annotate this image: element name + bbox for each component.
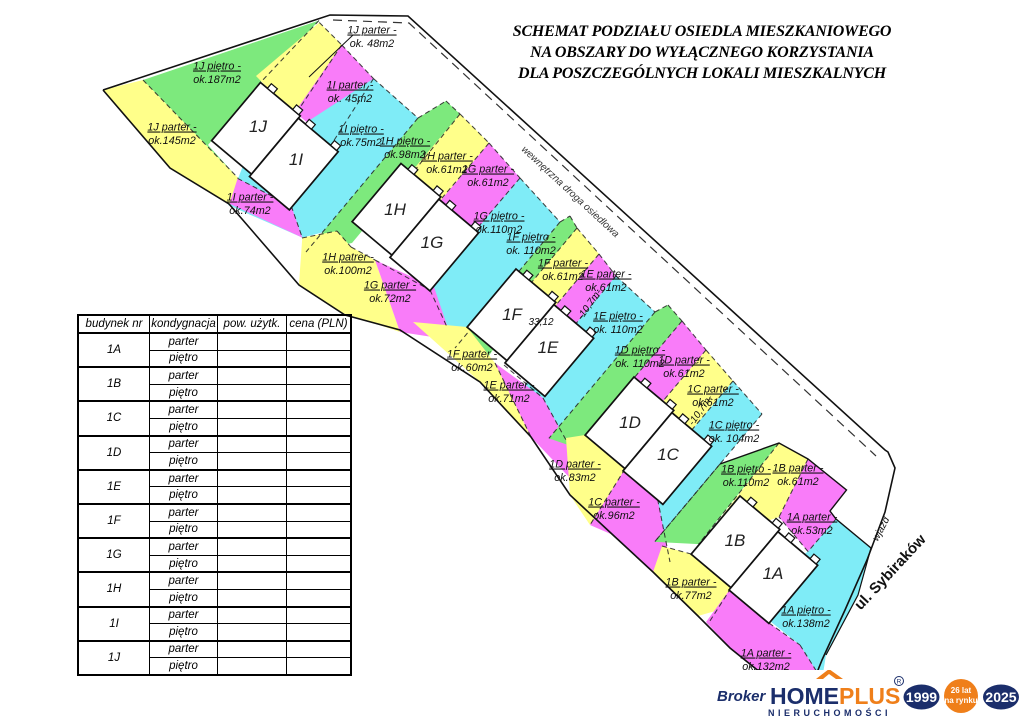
svg-text:1E: 1E: [538, 338, 559, 357]
svg-text:1C parter -: 1C parter -: [687, 384, 739, 396]
svg-text:1G parter -: 1G parter -: [462, 164, 515, 176]
svg-text:PLUS: PLUS: [839, 683, 900, 709]
svg-text:ok.61m2: ok.61m2: [542, 271, 583, 283]
svg-text:1D parter -: 1D parter -: [549, 459, 601, 471]
svg-text:1I parter -: 1I parter -: [227, 192, 274, 204]
svg-text:1I parter -: 1I parter -: [327, 80, 374, 92]
svg-text:R: R: [897, 679, 902, 686]
svg-text:1B parter -: 1B parter -: [772, 463, 823, 475]
svg-text:33,12: 33,12: [528, 317, 553, 328]
svg-text:ok.72m2: ok.72m2: [369, 293, 410, 305]
svg-text:ok.60m2: ok.60m2: [451, 362, 492, 374]
svg-text:1H piętro -: 1H piętro -: [380, 136, 431, 148]
svg-text:ok.77m2: ok.77m2: [670, 590, 711, 602]
svg-text:1J: 1J: [249, 117, 267, 136]
svg-text:ok. 45m2: ok. 45m2: [328, 93, 372, 105]
svg-text:1G parter -: 1G parter -: [364, 280, 417, 292]
svg-text:1A: 1A: [763, 564, 784, 583]
svg-text:1A parter -: 1A parter -: [741, 648, 792, 660]
svg-text:1F piętro -: 1F piętro -: [506, 232, 555, 244]
svg-text:1E parter -: 1E parter -: [580, 269, 631, 281]
svg-text:1D: 1D: [619, 413, 641, 432]
svg-text:wjazd: wjazd: [871, 515, 893, 543]
svg-text:26 lat: 26 lat: [951, 686, 972, 695]
svg-text:ok.138m2: ok.138m2: [782, 618, 829, 630]
svg-text:na rynku: na rynku: [944, 696, 977, 705]
svg-text:1D parter -: 1D parter -: [658, 355, 710, 367]
svg-text:1B piętro -: 1B piętro -: [721, 464, 771, 476]
svg-text:1H patrer -: 1H patrer -: [322, 252, 374, 264]
svg-text:1A parter -: 1A parter -: [787, 512, 838, 524]
svg-text:ok.61m2: ok.61m2: [663, 368, 704, 380]
svg-text:1G: 1G: [421, 233, 444, 252]
svg-text:Broker: Broker: [717, 688, 767, 705]
svg-text:ok.187m2: ok.187m2: [193, 74, 240, 86]
svg-text:1E parter -: 1E parter -: [483, 380, 534, 392]
svg-text:ok.110m2: ok.110m2: [723, 477, 770, 489]
svg-text:1J parter -: 1J parter -: [147, 122, 197, 134]
svg-text:ok.98m2: ok.98m2: [384, 149, 425, 161]
svg-text:ok.83m2: ok.83m2: [554, 472, 595, 484]
svg-text:1H parter -: 1H parter -: [421, 151, 473, 163]
svg-text:1J piętro -: 1J piętro -: [193, 61, 241, 73]
svg-text:1F parter -: 1F parter -: [447, 349, 498, 361]
svg-text:ok.100m2: ok.100m2: [324, 265, 371, 277]
svg-text:1C: 1C: [657, 445, 679, 464]
svg-text:NIERUCHOMOŚCI: NIERUCHOMOŚCI: [768, 707, 891, 718]
svg-text:ok.96m2: ok.96m2: [593, 510, 634, 522]
svg-text:1F: 1F: [502, 305, 523, 324]
svg-text:ok.75m2: ok.75m2: [340, 137, 381, 149]
svg-text:ok.145m2: ok.145m2: [148, 135, 195, 147]
svg-text:ok.53m2: ok.53m2: [791, 525, 832, 537]
svg-text:1J parter -: 1J parter -: [347, 25, 397, 37]
svg-text:2025: 2025: [985, 689, 1016, 705]
svg-text:1C piętro -: 1C piętro -: [709, 420, 760, 432]
svg-text:ok. 110m2: ok. 110m2: [506, 245, 556, 257]
svg-text:1999: 1999: [906, 689, 937, 705]
svg-text:HOME: HOME: [770, 683, 839, 709]
svg-text:1A piętro -: 1A piętro -: [781, 605, 831, 617]
svg-text:ok.61m2: ok.61m2: [467, 177, 508, 189]
svg-text:1B: 1B: [725, 531, 746, 550]
svg-text:ok.71m2: ok.71m2: [488, 393, 529, 405]
svg-text:1I: 1I: [289, 150, 303, 169]
svg-text:1G piętro -: 1G piętro -: [473, 211, 524, 223]
svg-text:1H: 1H: [384, 200, 406, 219]
svg-text:1I piętro -: 1I piętro -: [338, 124, 384, 136]
svg-text:ok.61m2: ok.61m2: [777, 476, 818, 488]
svg-text:1C parter -: 1C parter -: [588, 497, 640, 509]
svg-text:ok. 110m2: ok. 110m2: [593, 324, 643, 336]
svg-text:1B parter -: 1B parter -: [665, 577, 716, 589]
svg-text:1E piętro -: 1E piętro -: [593, 311, 643, 323]
svg-text:ok.74m2: ok.74m2: [229, 205, 270, 217]
svg-text:ok. 48m2: ok. 48m2: [350, 38, 394, 50]
svg-text:ok. 104m2: ok. 104m2: [709, 433, 759, 445]
